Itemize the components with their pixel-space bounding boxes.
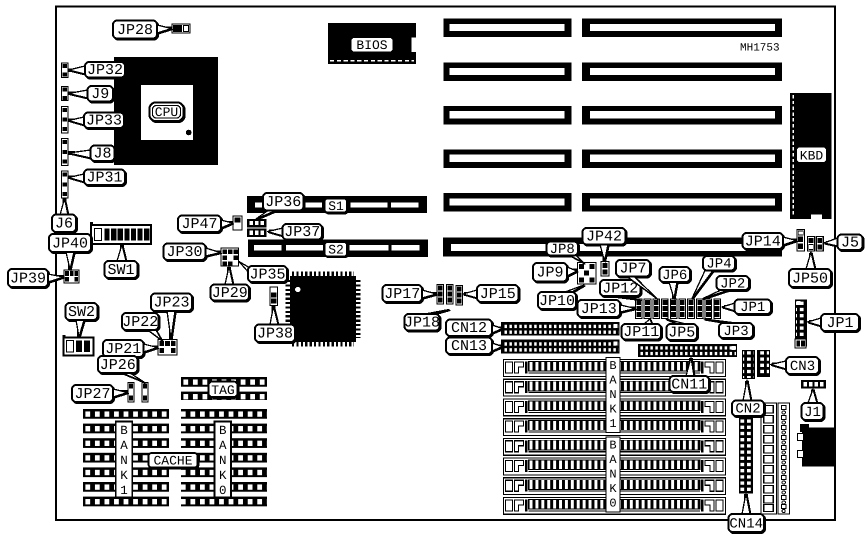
svg-text:JP40: JP40 [52, 235, 88, 252]
svg-text:A: A [609, 453, 617, 467]
svg-text:MH1753: MH1753 [740, 43, 780, 55]
svg-text:B: B [609, 439, 616, 453]
svg-text:CN3: CN3 [790, 359, 815, 375]
svg-text:JP12: JP12 [602, 280, 638, 297]
svg-text:1: 1 [120, 484, 128, 498]
svg-text:JP1: JP1 [740, 300, 765, 316]
svg-text:K: K [219, 469, 227, 483]
svg-text:JP5: JP5 [668, 324, 695, 341]
svg-text:JP10: JP10 [539, 293, 575, 310]
svg-text:1: 1 [609, 417, 616, 431]
svg-text:CN11: CN11 [671, 376, 707, 393]
svg-text:JP29: JP29 [212, 285, 248, 302]
svg-text:N: N [120, 454, 128, 468]
svg-text:JP27: JP27 [74, 386, 110, 403]
svg-text:CN13: CN13 [451, 338, 487, 355]
svg-text:N: N [219, 454, 227, 468]
svg-text:JP37: JP37 [284, 224, 320, 241]
svg-text:JP26: JP26 [100, 357, 136, 374]
svg-text:J5: J5 [841, 235, 859, 252]
svg-text:CN2: CN2 [735, 402, 760, 418]
svg-text:JP35: JP35 [249, 266, 285, 283]
svg-text:JP8: JP8 [550, 242, 575, 258]
svg-text:JP7: JP7 [619, 261, 646, 278]
svg-text:JP3: JP3 [723, 324, 748, 340]
svg-text:N: N [609, 468, 616, 482]
svg-text:JP9: JP9 [536, 265, 563, 282]
svg-text:JP1: JP1 [826, 315, 853, 332]
svg-text:JP31: JP31 [86, 170, 122, 187]
svg-text:A: A [609, 374, 617, 388]
svg-text:JP22: JP22 [122, 314, 158, 331]
svg-text:TAG: TAG [211, 383, 234, 398]
svg-text:JP18: JP18 [404, 315, 440, 332]
svg-text:JP23: JP23 [153, 295, 189, 312]
svg-text:JP4: JP4 [706, 257, 731, 273]
svg-text:JP36: JP36 [265, 194, 301, 211]
svg-text:S1: S1 [328, 199, 344, 214]
svg-text:JP47: JP47 [181, 216, 217, 233]
svg-text:CPU: CPU [155, 105, 178, 120]
svg-text:CACHE: CACHE [153, 454, 192, 469]
svg-text:BIOS: BIOS [356, 38, 387, 53]
svg-text:JP39: JP39 [10, 270, 46, 287]
svg-text:JP15: JP15 [480, 286, 516, 303]
svg-text:JP13: JP13 [581, 301, 617, 318]
svg-text:JP6: JP6 [662, 268, 687, 284]
svg-text:JP33: JP33 [86, 113, 122, 130]
svg-text:J9: J9 [91, 86, 109, 103]
svg-text:JP30: JP30 [166, 244, 202, 261]
svg-text:JP11: JP11 [623, 324, 659, 341]
svg-text:JP14: JP14 [745, 233, 781, 250]
svg-text:K: K [609, 482, 617, 496]
svg-text:A: A [120, 439, 128, 453]
svg-text:0: 0 [609, 497, 616, 511]
svg-text:J6: J6 [55, 216, 73, 233]
svg-text:JP28: JP28 [117, 22, 153, 39]
svg-text:B: B [120, 424, 128, 438]
svg-text:A: A [219, 439, 227, 453]
svg-text:JP2: JP2 [720, 276, 745, 292]
svg-text:SW1: SW1 [107, 262, 134, 279]
svg-text:N: N [609, 388, 616, 402]
svg-text:B: B [609, 359, 616, 373]
svg-text:JP50: JP50 [792, 270, 828, 287]
svg-text:0: 0 [219, 484, 227, 498]
svg-text:KBD: KBD [800, 148, 824, 163]
svg-text:JP17: JP17 [384, 286, 420, 303]
svg-text:CN14: CN14 [729, 516, 763, 532]
svg-text:SW2: SW2 [68, 304, 95, 321]
svg-text:JP32: JP32 [87, 62, 123, 79]
svg-text:S2: S2 [328, 243, 344, 258]
svg-text:CN12: CN12 [451, 320, 487, 337]
svg-text:J1: J1 [804, 405, 821, 421]
svg-text:JP38: JP38 [257, 326, 293, 343]
svg-text:K: K [609, 403, 617, 417]
svg-text:K: K [120, 469, 128, 483]
svg-text:J8: J8 [93, 146, 111, 163]
svg-text:B: B [219, 424, 227, 438]
svg-text:JP42: JP42 [586, 229, 622, 246]
